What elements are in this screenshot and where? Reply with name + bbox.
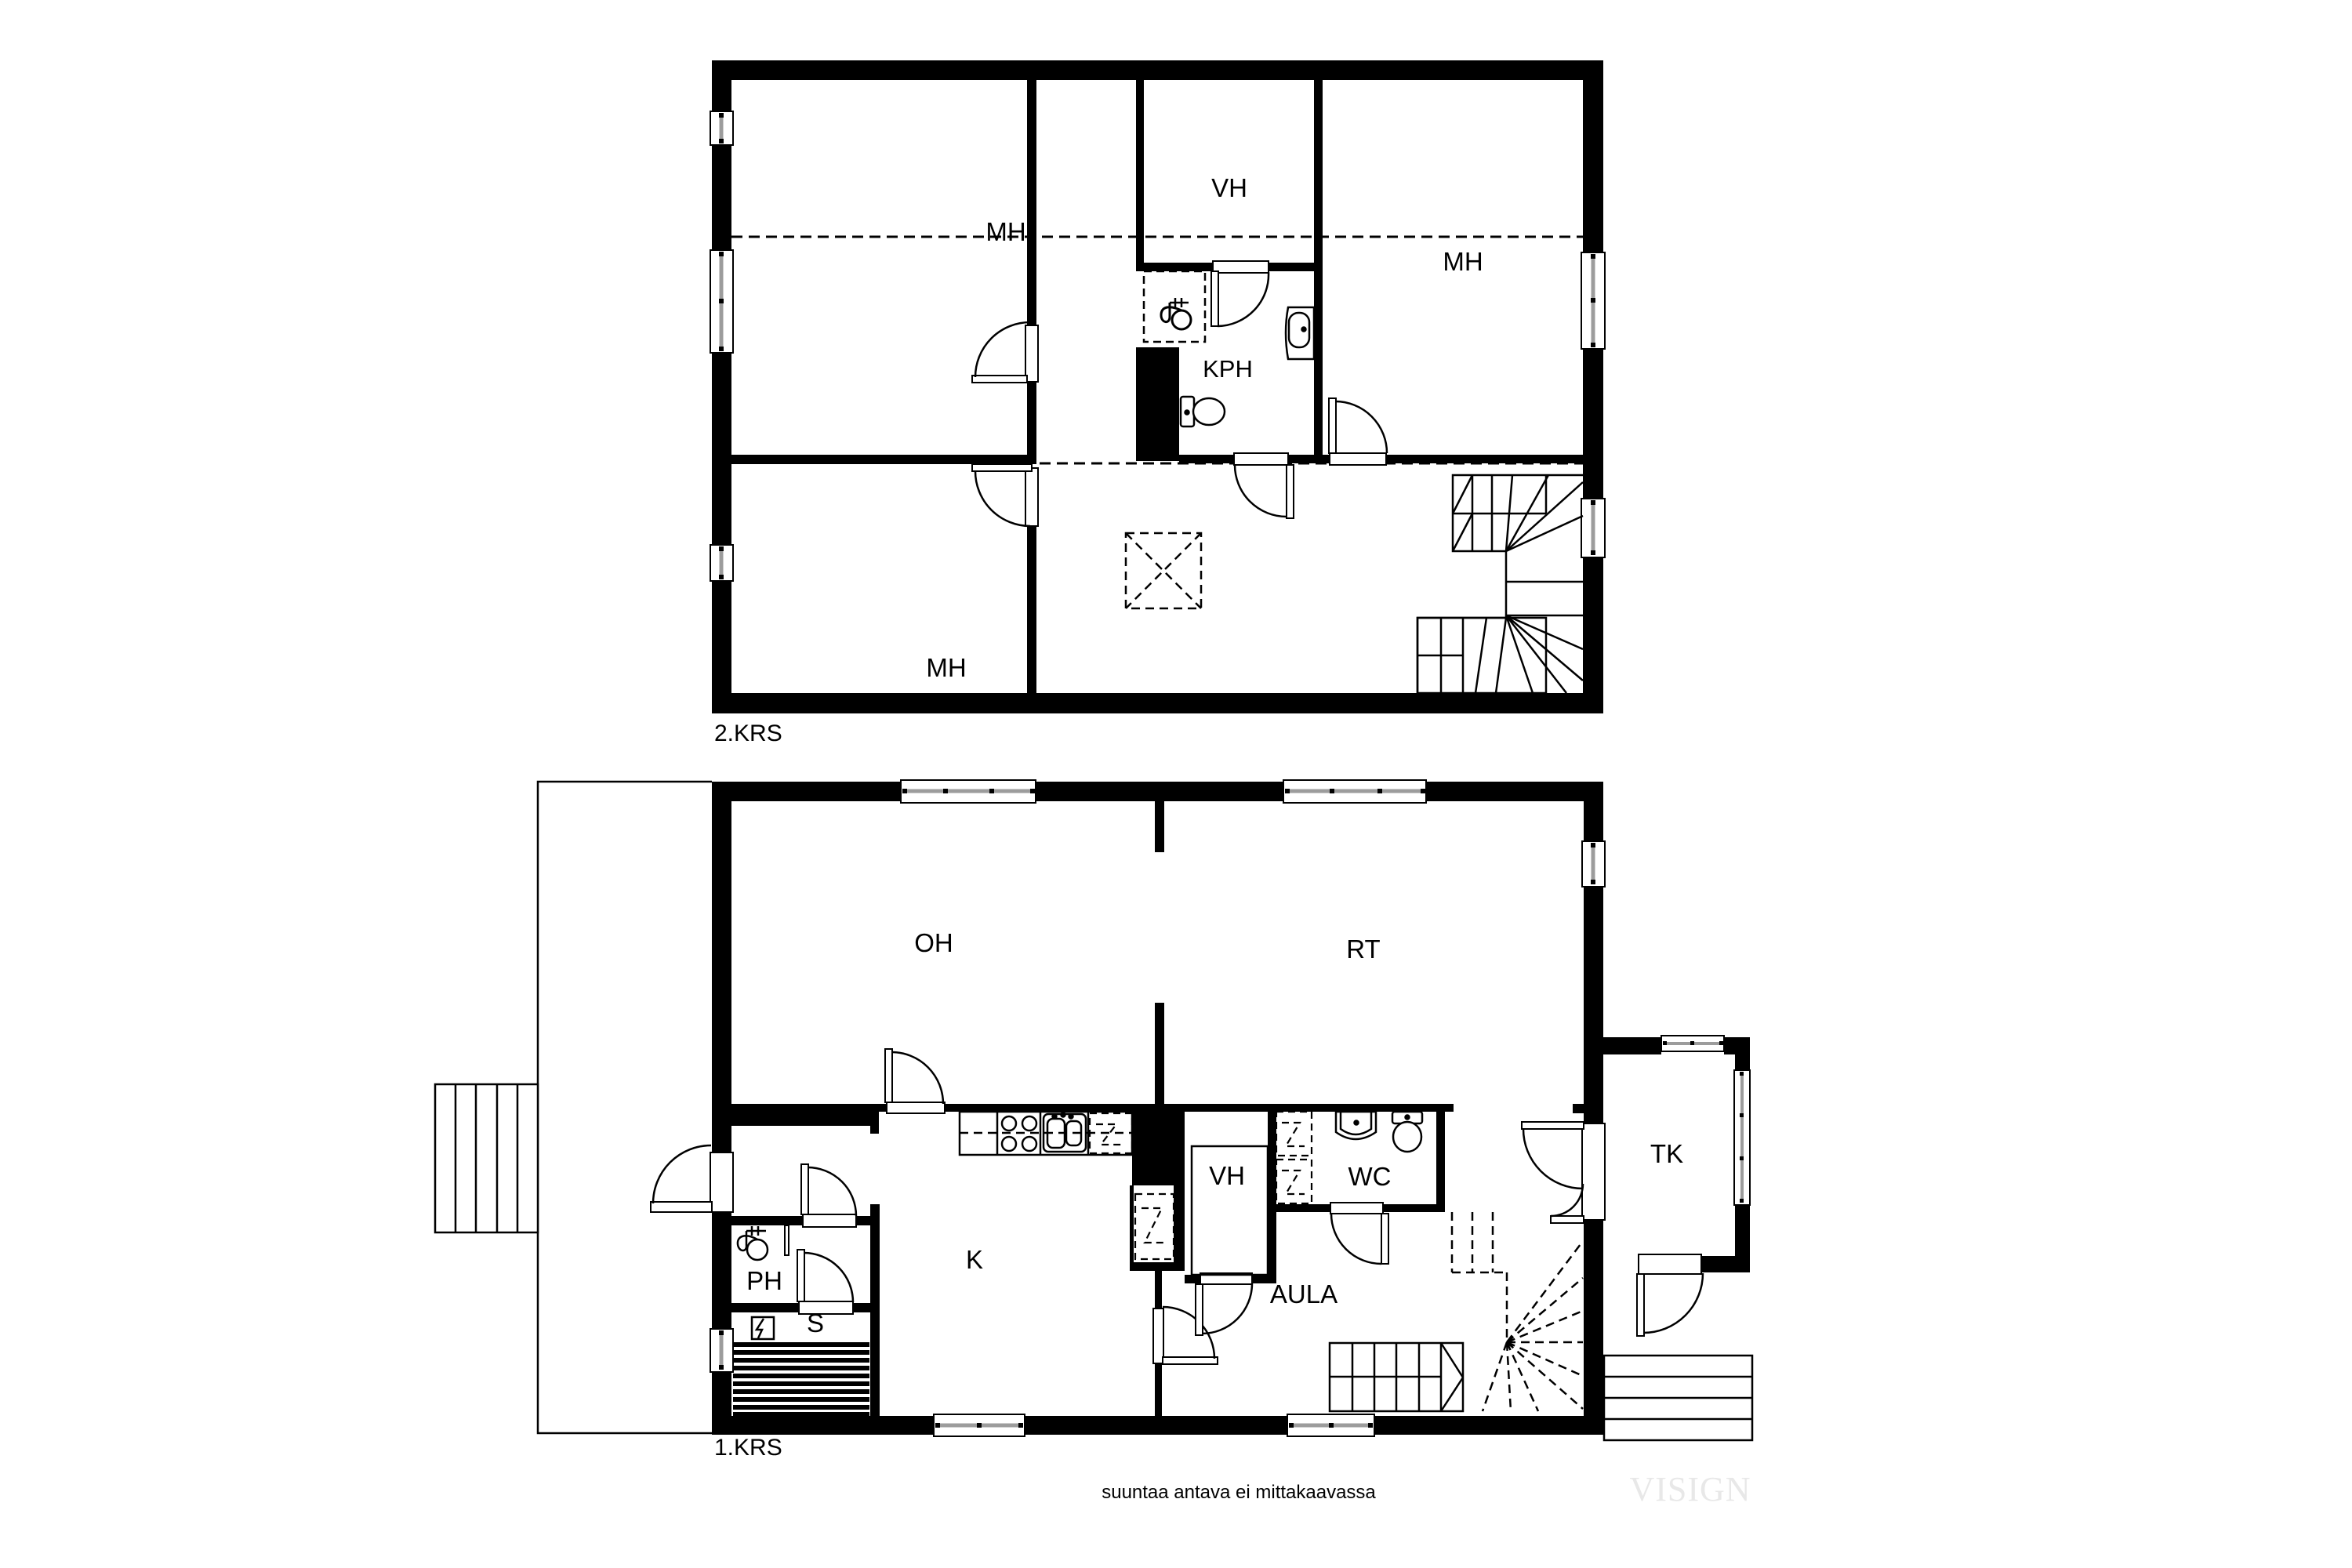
- svg-text:1.KRS: 1.KRS: [714, 1435, 782, 1461]
- svg-text:MH: MH: [985, 217, 1025, 246]
- svg-text:OH: OH: [914, 928, 953, 957]
- svg-text:TK: TK: [1650, 1139, 1683, 1168]
- svg-text:VISIGN: VISIGN: [1629, 1470, 1751, 1508]
- svg-text:PH: PH: [746, 1266, 782, 1295]
- svg-text:K: K: [966, 1245, 983, 1274]
- svg-text:2.KRS: 2.KRS: [714, 720, 782, 746]
- svg-text:RT: RT: [1346, 935, 1380, 964]
- svg-text:WC: WC: [1348, 1162, 1392, 1191]
- svg-text:S: S: [807, 1308, 824, 1338]
- svg-text:suuntaa antava ei mittakaavass: suuntaa antava ei mittakaavassa: [1102, 1482, 1376, 1503]
- svg-text:VH: VH: [1209, 1161, 1245, 1190]
- svg-text:MH: MH: [926, 653, 966, 682]
- svg-text:AULA: AULA: [1270, 1279, 1338, 1308]
- svg-text:VH: VH: [1211, 173, 1247, 202]
- svg-text:MH: MH: [1443, 247, 1483, 276]
- svg-text:KPH: KPH: [1203, 355, 1253, 383]
